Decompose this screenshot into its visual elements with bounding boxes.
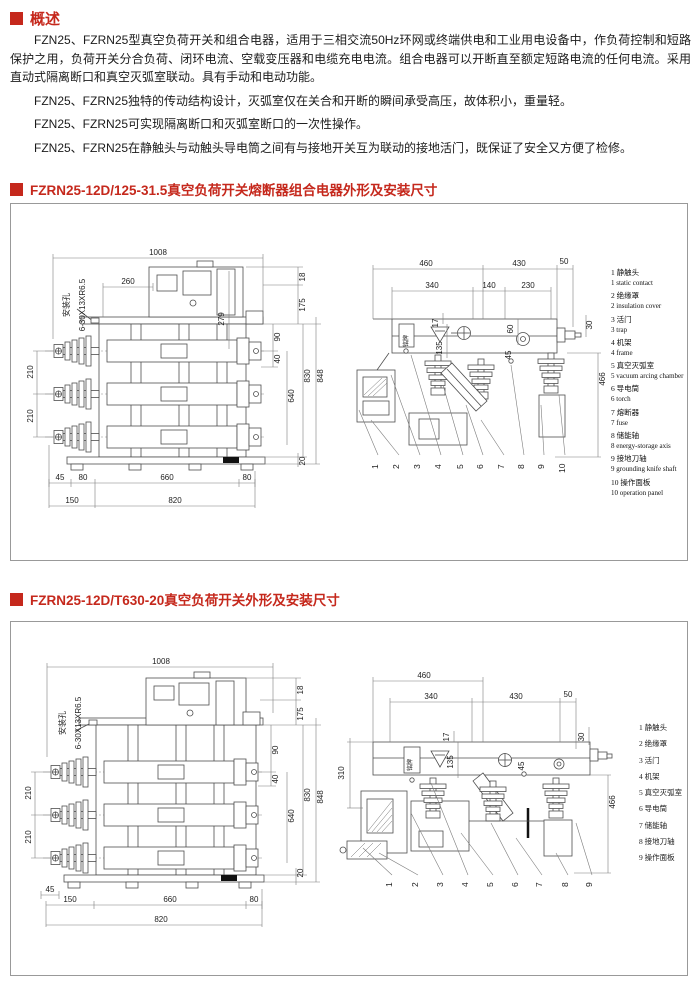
dim-label: 210: [24, 830, 33, 844]
section2-heading: FZRN25-12D/T630-20真空负荷开关外形及安装尺寸: [10, 589, 340, 609]
dim-label: 30: [577, 732, 586, 741]
overview-paragraph: FZN25、FZRN25在静触头与动触头导电筒之间有与接地开关互为联动的接地活门…: [10, 139, 691, 158]
overview-text: FZN25、FZRN25型真空负荷开关和组合电器，适用于三相交流50Hz环网或终…: [10, 31, 691, 162]
dim-label: 640: [287, 809, 296, 823]
part-name-zh: 7 熔断器: [611, 407, 689, 418]
part-name-en: 5 vacuum arcing chamber: [611, 371, 689, 381]
parts-item: 9 操作面板: [639, 852, 699, 868]
callout-number: 4: [433, 464, 443, 469]
parts-item: 9 接地刀轴9 grounding knife shaft: [611, 453, 689, 476]
callout-number: 6: [475, 464, 485, 469]
dim-label: 1008: [149, 248, 167, 257]
dim-label: 150: [63, 895, 77, 904]
callout-number: 1: [384, 882, 394, 887]
part-name-zh: 2 绝缘罩: [611, 290, 689, 301]
nameplate-label: 铭牌: [402, 335, 410, 347]
dim-label: 640: [287, 389, 296, 403]
part-name-zh: 4 机架: [611, 337, 689, 348]
parts-item: 5 真空灭弧室: [639, 787, 699, 803]
callout-numbers: 1 2 3 4 5 6 7 8 9 10: [370, 463, 567, 473]
dim-label: 466: [608, 795, 617, 809]
side-view-dims: [373, 265, 601, 457]
part-name-zh: 10 操作面板: [611, 477, 689, 488]
part-name-zh: 9 接地刀轴: [611, 453, 689, 464]
dim-label: 175: [298, 298, 307, 312]
callout-number: 7: [496, 464, 506, 469]
dim-label: 820: [154, 915, 168, 924]
part-name-en: 6 torch: [611, 394, 689, 404]
parts-item: 2 绝缘罩: [639, 738, 699, 754]
dim-label: 50: [560, 257, 569, 266]
dim-label: 90: [273, 332, 282, 341]
callout-number: 5: [485, 882, 495, 887]
dim-label: 60: [506, 324, 515, 333]
part-name-zh: 8 储能轴: [611, 430, 689, 441]
dim-label: 830: [303, 369, 312, 383]
parts-list-1: 1 静触头1 static contact 2 绝缘罩2 insulation …: [611, 267, 689, 500]
dim-label: 230: [521, 281, 535, 290]
dim-label: 848: [316, 369, 325, 383]
dim-label: 45: [46, 885, 55, 894]
parts-item: 8 接地刀轴: [639, 836, 699, 852]
dim-label: 45: [504, 350, 513, 359]
parts-item: 5 真空灭弧室5 vacuum arcing chamber: [611, 360, 689, 383]
dim-label: 848: [316, 790, 325, 804]
dim-label: 45: [517, 761, 526, 770]
mount-hole-label: 安装孔: [61, 293, 71, 317]
section1-heading: FZRN25-12D/125-31.5真空负荷开关熔断器组合电器外形及安装尺寸: [10, 179, 437, 199]
dim-label: 820: [168, 496, 182, 505]
parts-list-2: 1 静触头 2 绝缘罩 3 活门 4 机架 5 真空灭弧室 6 导电筒 7 储能…: [639, 722, 699, 869]
part-name-en: 4 frame: [611, 348, 689, 358]
mount-hole-label: 安装孔: [57, 711, 67, 735]
dim-label: 460: [417, 671, 431, 680]
drawing2-canvas: 1008 18 175 90 40 830 848 210 210 640 20…: [11, 622, 687, 975]
dim-label: 18: [298, 272, 307, 281]
dim-label: 50: [564, 690, 573, 699]
dim-label: 80: [79, 473, 88, 482]
overview-paragraph: FZN25、FZRN25独特的传动结构设计，灭弧室仅在关合和开断的瞬间承受高压，…: [10, 92, 691, 111]
dim-label: 660: [163, 895, 177, 904]
dim-label: 20: [296, 868, 305, 877]
drawing2-box: 1008 18 175 90 40 830 848 210 210 640 20…: [10, 621, 688, 976]
dim-label: 20: [298, 456, 307, 465]
dim-label: 830: [303, 788, 312, 802]
overview-title: 概述: [30, 8, 60, 29]
dim-label: 310: [337, 766, 346, 780]
part-name-en: 8 energy-storage axis: [611, 441, 689, 451]
part-name-en: 9 grounding knife shaft: [611, 464, 689, 474]
drawing1-box: 1008 260 279 18 175 90 40 830 848 210 21…: [10, 203, 688, 561]
dim-label: 260: [121, 277, 135, 286]
part-name-zh: 6 导电筒: [611, 383, 689, 394]
hole-mark-icon: [509, 359, 513, 363]
dim-label: 80: [243, 473, 252, 482]
callout-number: 6: [510, 882, 520, 887]
callout-number: 1: [370, 464, 380, 469]
parts-item: 10 操作面板10 operation panel: [611, 477, 689, 500]
dim-label: 140: [482, 281, 496, 290]
side-view-dim-labels: 460 340 430 50 310 17 135 45 30 466: [337, 671, 617, 809]
callout-number: 8: [560, 882, 570, 887]
drawing1-canvas: 1008 260 279 18 175 90 40 830 848 210 21…: [11, 204, 687, 560]
catalog-page: 概述 FZN25、FZRN25型真空负荷开关和组合电器，适用于三相交流50Hz环…: [0, 0, 700, 984]
dim-label: 430: [512, 259, 526, 268]
parts-item: 4 机架: [639, 771, 699, 787]
hole-mark-icon: [522, 772, 526, 776]
side-view-drawing: [357, 319, 581, 445]
dim-label: 150: [65, 496, 79, 505]
dim-label: 40: [271, 774, 280, 783]
part-name-zh: 3 活门: [611, 314, 689, 325]
part-name-en: 2 insulation cover: [611, 301, 689, 311]
part-name-en: 1 static contact: [611, 278, 689, 288]
callout-number: 2: [391, 464, 401, 469]
dim-label: 660: [160, 473, 174, 482]
dim-label: 460: [419, 259, 433, 268]
dim-label: 466: [598, 372, 607, 386]
dim-label: 279: [217, 312, 226, 326]
red-square-bullet-icon: [10, 183, 23, 196]
dim-label: 40: [273, 354, 282, 363]
mount-hole-spec-label: 6-30X13XR6.5: [78, 278, 87, 331]
dim-label: 17: [442, 732, 451, 741]
dim-label: 340: [425, 281, 439, 290]
dim-label: 175: [296, 707, 305, 721]
parts-item: 3 活门3 trap: [611, 314, 689, 337]
part-name-en: 10 operation panel: [611, 488, 689, 498]
red-square-bullet-icon: [10, 593, 23, 606]
parts-item: 2 绝缘罩2 insulation cover: [611, 290, 689, 313]
part-name-en: 7 fuse: [611, 418, 689, 428]
overview-paragraph: FZN25、FZRN25可实现隔离断口和灭弧室断口的一次性操作。: [10, 115, 691, 134]
dim-label: 30: [585, 320, 594, 329]
callout-number: 4: [460, 882, 470, 887]
dim-label: 80: [250, 895, 259, 904]
overview-paragraph: FZN25、FZRN25型真空负荷开关和组合电器，适用于三相交流50Hz环网或终…: [10, 31, 691, 87]
dim-label: 135: [446, 755, 455, 769]
part-name-zh: 5 真空灭弧室: [611, 360, 689, 371]
callout-number: 2: [410, 882, 420, 887]
part-name-zh: 1 静触头: [611, 267, 689, 278]
callout-number: 10: [557, 463, 567, 473]
parts-item: 7 储能轴: [639, 820, 699, 836]
parts-item: 1 静触头1 static contact: [611, 267, 689, 290]
red-square-bullet-icon: [10, 12, 23, 25]
dim-label: 210: [24, 786, 33, 800]
callout-number: 9: [584, 882, 594, 887]
callout-number: 5: [455, 464, 465, 469]
parts-item: 6 导电筒: [639, 803, 699, 819]
parts-item: 4 机架4 frame: [611, 337, 689, 360]
dim-label: 45: [56, 473, 65, 482]
parts-item: 3 活门: [639, 755, 699, 771]
callout-number: 7: [534, 882, 544, 887]
parts-item: 1 静触头: [639, 722, 699, 738]
dim-label: 135: [435, 341, 444, 355]
part-name-en: 3 trap: [611, 325, 689, 335]
section2-title: FZRN25-12D/T630-20真空负荷开关外形及安装尺寸: [30, 589, 340, 609]
parts-item: 7 熔断器7 fuse: [611, 407, 689, 430]
callout-numbers: 1 2 3 4 5 6 7 8 9: [384, 882, 594, 887]
overview-heading: 概述: [10, 8, 60, 29]
callout-number: 8: [516, 464, 526, 469]
dim-label: 210: [26, 409, 35, 423]
section1-title: FZRN25-12D/125-31.5真空负荷开关熔断器组合电器外形及安装尺寸: [30, 179, 437, 199]
dim-label: 18: [296, 685, 305, 694]
mount-hole-spec-label: 6-30X13XR6.5: [74, 696, 83, 749]
dim-label: 340: [424, 692, 438, 701]
callout-number: 9: [536, 464, 546, 469]
nameplate-label: 铭牌: [406, 759, 414, 771]
parts-item: 6 导电筒6 torch: [611, 383, 689, 406]
dim-label: 1008: [152, 657, 170, 666]
parts-item: 8 储能轴8 energy-storage axis: [611, 430, 689, 453]
dim-label: 430: [509, 692, 523, 701]
dim-label: 17: [431, 318, 440, 327]
dim-label: 90: [271, 745, 280, 754]
callout-number: 3: [412, 464, 422, 469]
side-view-drawing: [340, 742, 612, 859]
dim-label: 210: [26, 365, 35, 379]
callout-number: 3: [435, 882, 445, 887]
